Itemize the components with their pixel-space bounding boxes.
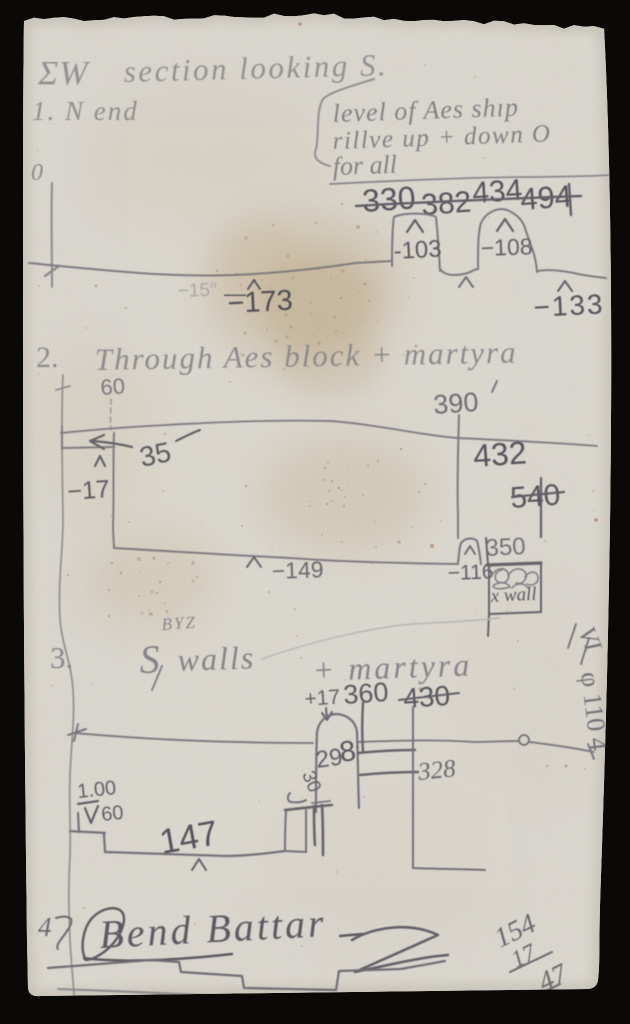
svg-text:walls: walls <box>177 639 256 678</box>
svg-text:350: 350 <box>485 533 526 562</box>
svg-text:section looking S.: section looking S. <box>123 47 388 89</box>
svg-text:60: 60 <box>100 373 126 400</box>
svg-text:60: 60 <box>100 802 124 826</box>
svg-text:−15′′: −15′′ <box>177 280 218 302</box>
svg-text:−17: −17 <box>66 475 110 506</box>
svg-text:2.: 2. <box>36 341 59 374</box>
svg-text:390: 390 <box>432 387 479 420</box>
svg-text:35: 35 <box>137 436 174 473</box>
svg-text:1.00: 1.00 <box>76 777 117 803</box>
svg-text:0: 0 <box>31 160 43 186</box>
svg-text:x wall: x wall <box>489 584 537 607</box>
svg-text:.: . <box>355 735 359 752</box>
svg-text:S: S <box>139 636 161 682</box>
svg-text:−133: −133 <box>533 288 606 323</box>
svg-text:3.: 3. <box>50 640 73 675</box>
svg-text:for all: for all <box>332 150 397 181</box>
svg-text:−149: −149 <box>271 556 324 584</box>
svg-text:BYZ: BYZ <box>161 613 198 634</box>
svg-text:328: 328 <box>416 755 458 786</box>
svg-text:4: 4 <box>38 912 52 942</box>
svg-text:+17: +17 <box>304 686 341 711</box>
svg-text:432: 432 <box>472 434 528 474</box>
svg-text:360: 360 <box>342 677 389 710</box>
svg-text:ΣW: ΣW <box>37 55 90 92</box>
svg-text:1. N end: 1. N end <box>32 96 139 126</box>
svg-text:-103: -103 <box>393 236 442 265</box>
svg-text:382: 382 <box>420 186 472 222</box>
svg-text:−108: −108 <box>480 233 533 261</box>
svg-text:Through Aes block + martyra: Through Aes block + martyra <box>95 335 518 377</box>
svg-text:434: 434 <box>471 174 523 210</box>
